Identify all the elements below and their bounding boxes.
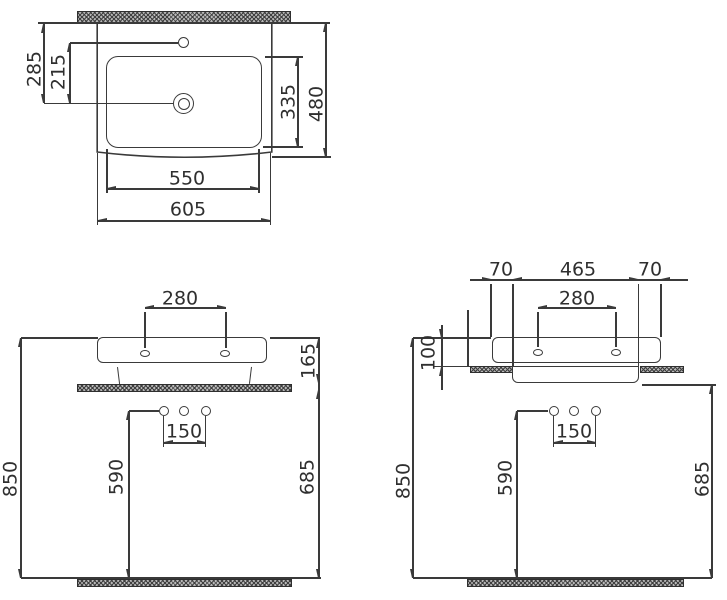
extension-line: [270, 153, 271, 225]
arrow-up-icon: [126, 411, 130, 420]
drain-leader-line: [44, 103, 173, 104]
arrow-right-icon: [607, 305, 616, 309]
drain-hole-inner: [178, 98, 190, 110]
dim-label-150: 150: [556, 423, 592, 442]
arrow-down-icon: [41, 94, 45, 103]
arrow-up-icon: [410, 338, 414, 347]
leader-line: [517, 410, 548, 411]
dim-label-685: 685: [694, 461, 713, 497]
arrow-up-icon: [439, 367, 443, 376]
extension-line: [144, 312, 145, 348]
outlet-hole: [569, 406, 579, 416]
arrow-down-icon: [439, 329, 443, 338]
arrow-up-icon: [316, 390, 320, 399]
tap-hole: [611, 349, 621, 356]
dim-label-70-right: 70: [638, 261, 662, 280]
outlet-hole: [179, 406, 189, 416]
dim-label-685: 685: [299, 459, 318, 495]
arrow-up-icon: [67, 43, 71, 52]
extension-line: [537, 312, 538, 347]
tap-hole: [140, 350, 150, 357]
dim-label-590: 590: [497, 460, 516, 496]
extension-line: [660, 284, 661, 337]
dim-label-850: 850: [395, 463, 414, 499]
basin-underside-edge: [249, 367, 252, 384]
extension-line: [638, 284, 639, 366]
dim-label-70-left: 70: [489, 261, 513, 280]
arrow-left-icon: [513, 277, 522, 281]
arrow-down-icon: [67, 94, 71, 103]
outlet-hole: [591, 406, 601, 416]
extension-line: [272, 156, 331, 157]
arrow-left-icon: [538, 305, 547, 309]
outlet-hole: [549, 406, 559, 416]
arrow-right-icon: [250, 186, 259, 190]
extension-line: [642, 384, 716, 385]
outlet-hole: [159, 406, 169, 416]
extension-line: [270, 337, 320, 338]
leader-line: [129, 410, 159, 411]
dim-label-335: 335: [280, 84, 299, 120]
basin-body: [97, 337, 267, 363]
dim-label-605: 605: [170, 201, 206, 220]
dim-label-100: 100: [420, 335, 439, 371]
tap-hole: [220, 350, 230, 357]
dim-label-850: 850: [2, 461, 21, 497]
arrow-right-icon: [629, 277, 638, 281]
basin-body: [492, 337, 661, 363]
dim-label-465: 465: [560, 261, 596, 280]
arrow-left-icon: [145, 305, 154, 309]
extension-line: [490, 284, 491, 337]
arrow-up-icon: [295, 57, 299, 66]
tap-hole: [178, 37, 189, 48]
counter-strip: [470, 366, 513, 373]
arrow-up-icon: [514, 411, 518, 420]
extension-line: [21, 337, 98, 338]
counter-strip: [77, 384, 292, 392]
dim-line: [128, 411, 129, 578]
tap-hole-leader-line: [70, 42, 178, 43]
arrow-left-icon: [107, 186, 116, 190]
dim-line: [20, 338, 21, 578]
arrow-up-icon: [41, 24, 45, 33]
dim-line: [516, 411, 517, 578]
tap-hole: [533, 349, 543, 356]
dim-label-150: 150: [166, 423, 202, 442]
arrow-down-icon: [295, 138, 299, 147]
basin-undercounter-part: [512, 366, 639, 383]
basin-underside-edge: [117, 367, 120, 384]
dim-label-480: 480: [308, 86, 327, 122]
dim-label-280: 280: [559, 290, 595, 309]
extension-line: [97, 153, 98, 225]
arrow-left-icon: [98, 218, 107, 222]
counter-strip: [640, 366, 684, 373]
arrow-right-icon: [261, 218, 270, 222]
arrow-up-icon: [709, 385, 713, 394]
extension-line: [615, 312, 616, 347]
dim-label-280: 280: [162, 290, 198, 309]
dim-line: [412, 338, 413, 578]
arrow-left-icon: [661, 277, 670, 281]
arrow-right-icon: [217, 305, 226, 309]
dim-label-590: 590: [108, 459, 127, 495]
arrow-down-icon: [323, 148, 327, 157]
extension-line: [225, 312, 226, 348]
dim-line: [98, 220, 270, 221]
dim-label-165: 165: [300, 343, 319, 379]
arrow-up-icon: [323, 23, 327, 32]
technical-drawing-canvas: 285 215 335 480 550 605: [0, 0, 727, 600]
extension-line: [512, 284, 513, 366]
floor-strip: [77, 579, 292, 587]
outlet-hole: [201, 406, 211, 416]
floor-strip: [467, 579, 684, 587]
dim-label-215: 215: [50, 54, 69, 90]
dim-label-550: 550: [169, 170, 205, 189]
dim-label-285: 285: [26, 51, 45, 87]
arrow-up-icon: [18, 338, 22, 347]
